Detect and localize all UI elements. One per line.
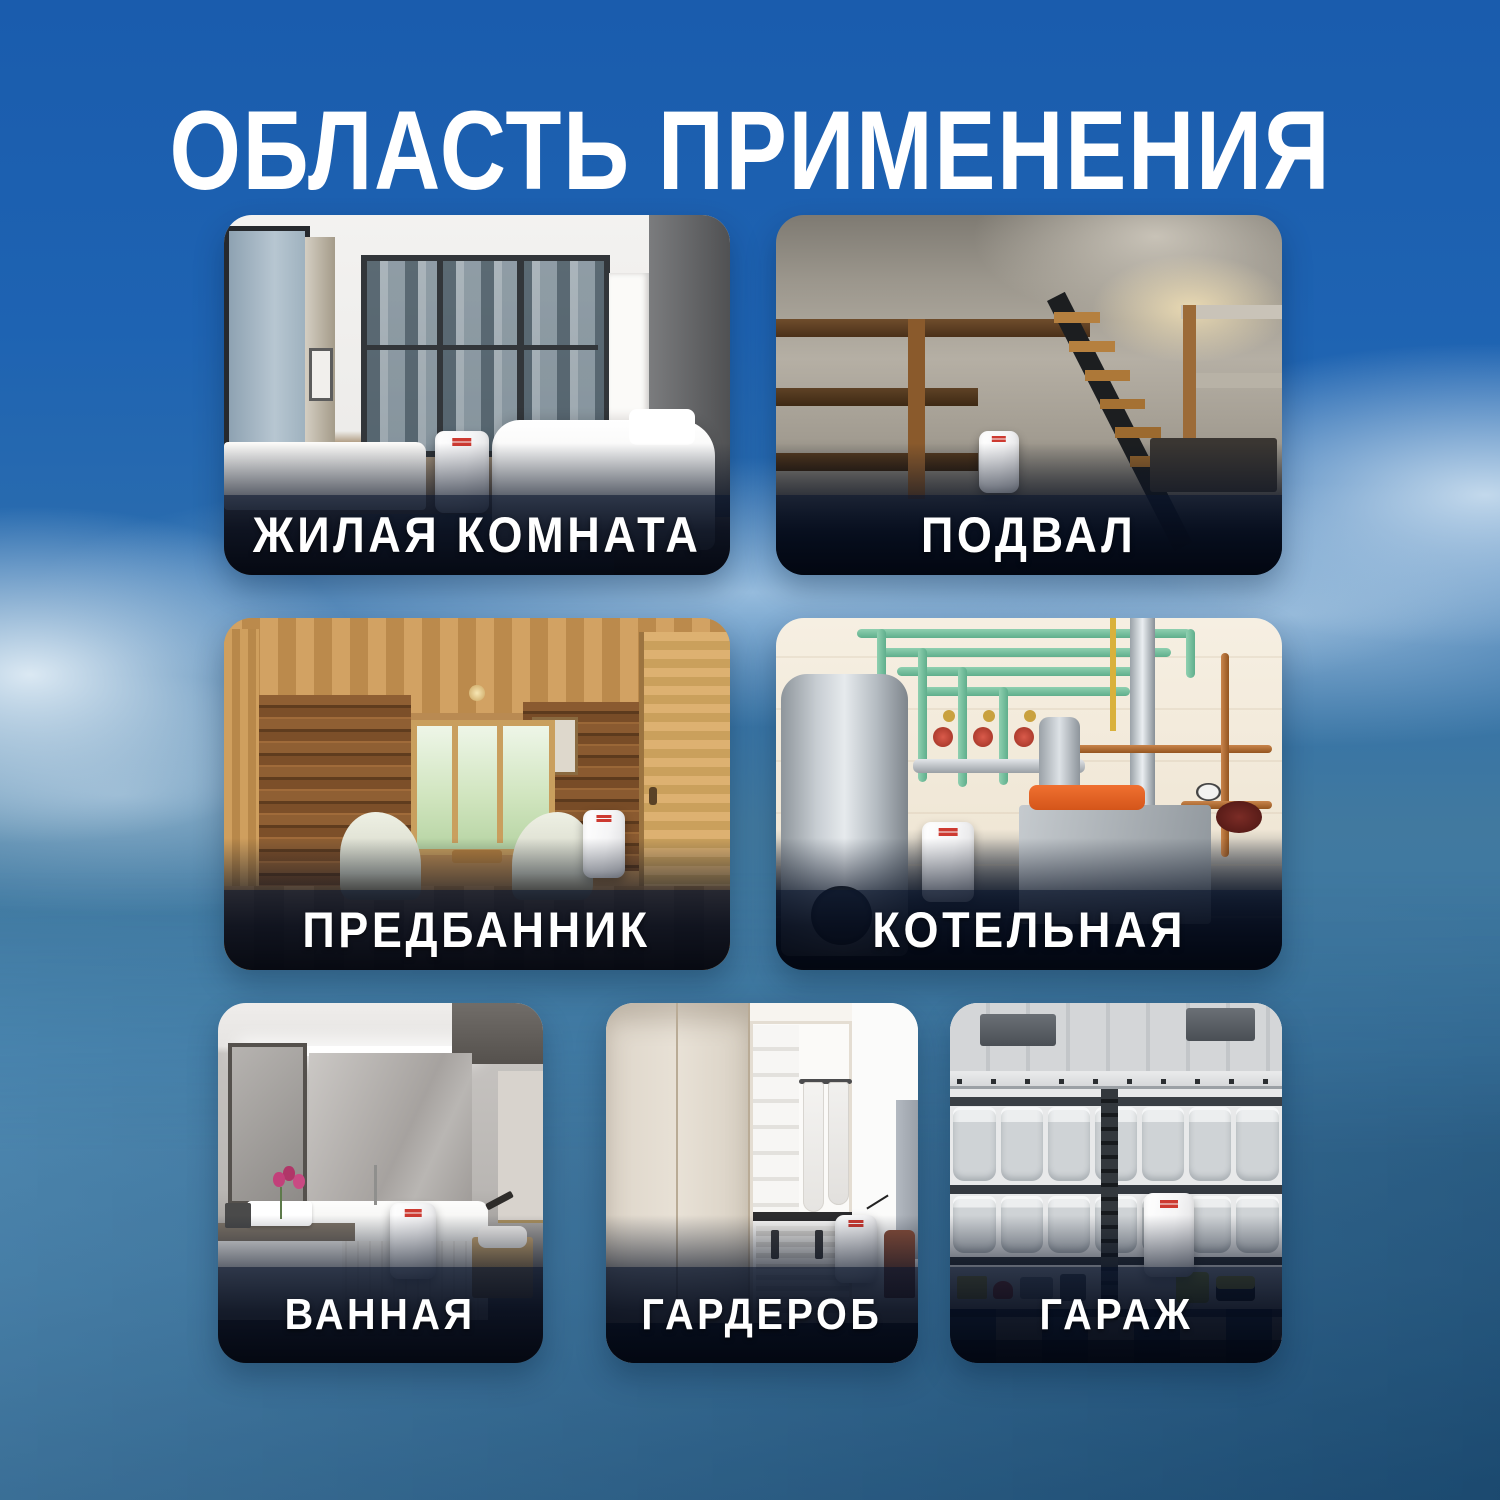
card-label: ПРЕДБАННИК — [303, 901, 651, 959]
card-label-band: ПОДВАЛ — [776, 495, 1282, 575]
page-title: ОБЛАСТЬ ПРИМЕНЕНИЯ — [0, 86, 1500, 215]
card-label: ВАННАЯ — [285, 1290, 476, 1340]
card-basement: ПОДВАЛ — [776, 215, 1282, 575]
card-anteroom: ПРЕДБАННИК — [224, 618, 730, 970]
card-label: КОТЕЛЬНАЯ — [872, 901, 1186, 959]
card-label-band: КОТЕЛЬНАЯ — [776, 890, 1282, 970]
promo-page: ОБЛАСТЬ ПРИМЕНЕНИЯ ЖИЛАЯ КОМНАТА ПОДВАЛ — [0, 0, 1500, 1500]
card-wardrobe: ГАРДЕРОБ — [606, 1003, 918, 1363]
card-label-band: ВАННАЯ — [218, 1267, 543, 1363]
card-boiler-room: КОТЕЛЬНАЯ — [776, 618, 1282, 970]
card-label: ГАРДЕРОБ — [641, 1290, 882, 1340]
card-bathroom: ВАННАЯ — [218, 1003, 543, 1363]
card-label-band: ГАРДЕРОБ — [606, 1267, 918, 1363]
card-living-room: ЖИЛАЯ КОМНАТА — [224, 215, 730, 575]
card-label-band: ГАРАЖ — [950, 1267, 1282, 1363]
card-garage: ГАРАЖ — [950, 1003, 1282, 1363]
card-label: ГАРАЖ — [1039, 1290, 1193, 1340]
card-label-band: ЖИЛАЯ КОМНАТА — [224, 495, 730, 575]
card-label-band: ПРЕДБАННИК — [224, 890, 730, 970]
page-title-text: ОБЛАСТЬ ПРИМЕНЕНИЯ — [169, 86, 1331, 215]
card-label: ЖИЛАЯ КОМНАТА — [253, 506, 702, 564]
card-label: ПОДВАЛ — [921, 506, 1136, 564]
